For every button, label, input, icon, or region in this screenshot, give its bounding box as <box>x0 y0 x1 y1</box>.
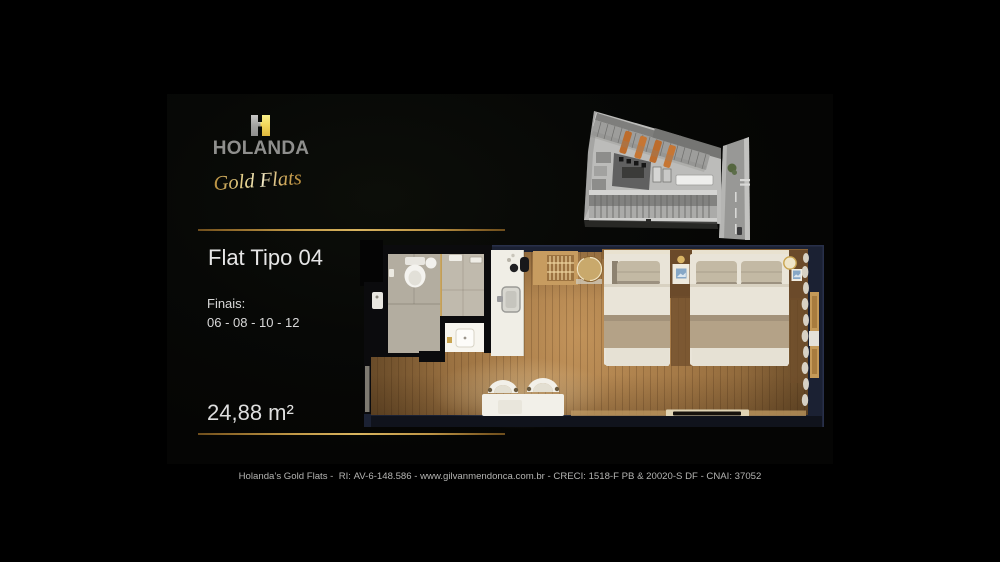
svg-text:Gold Flats: Gold Flats <box>213 167 303 195</box>
